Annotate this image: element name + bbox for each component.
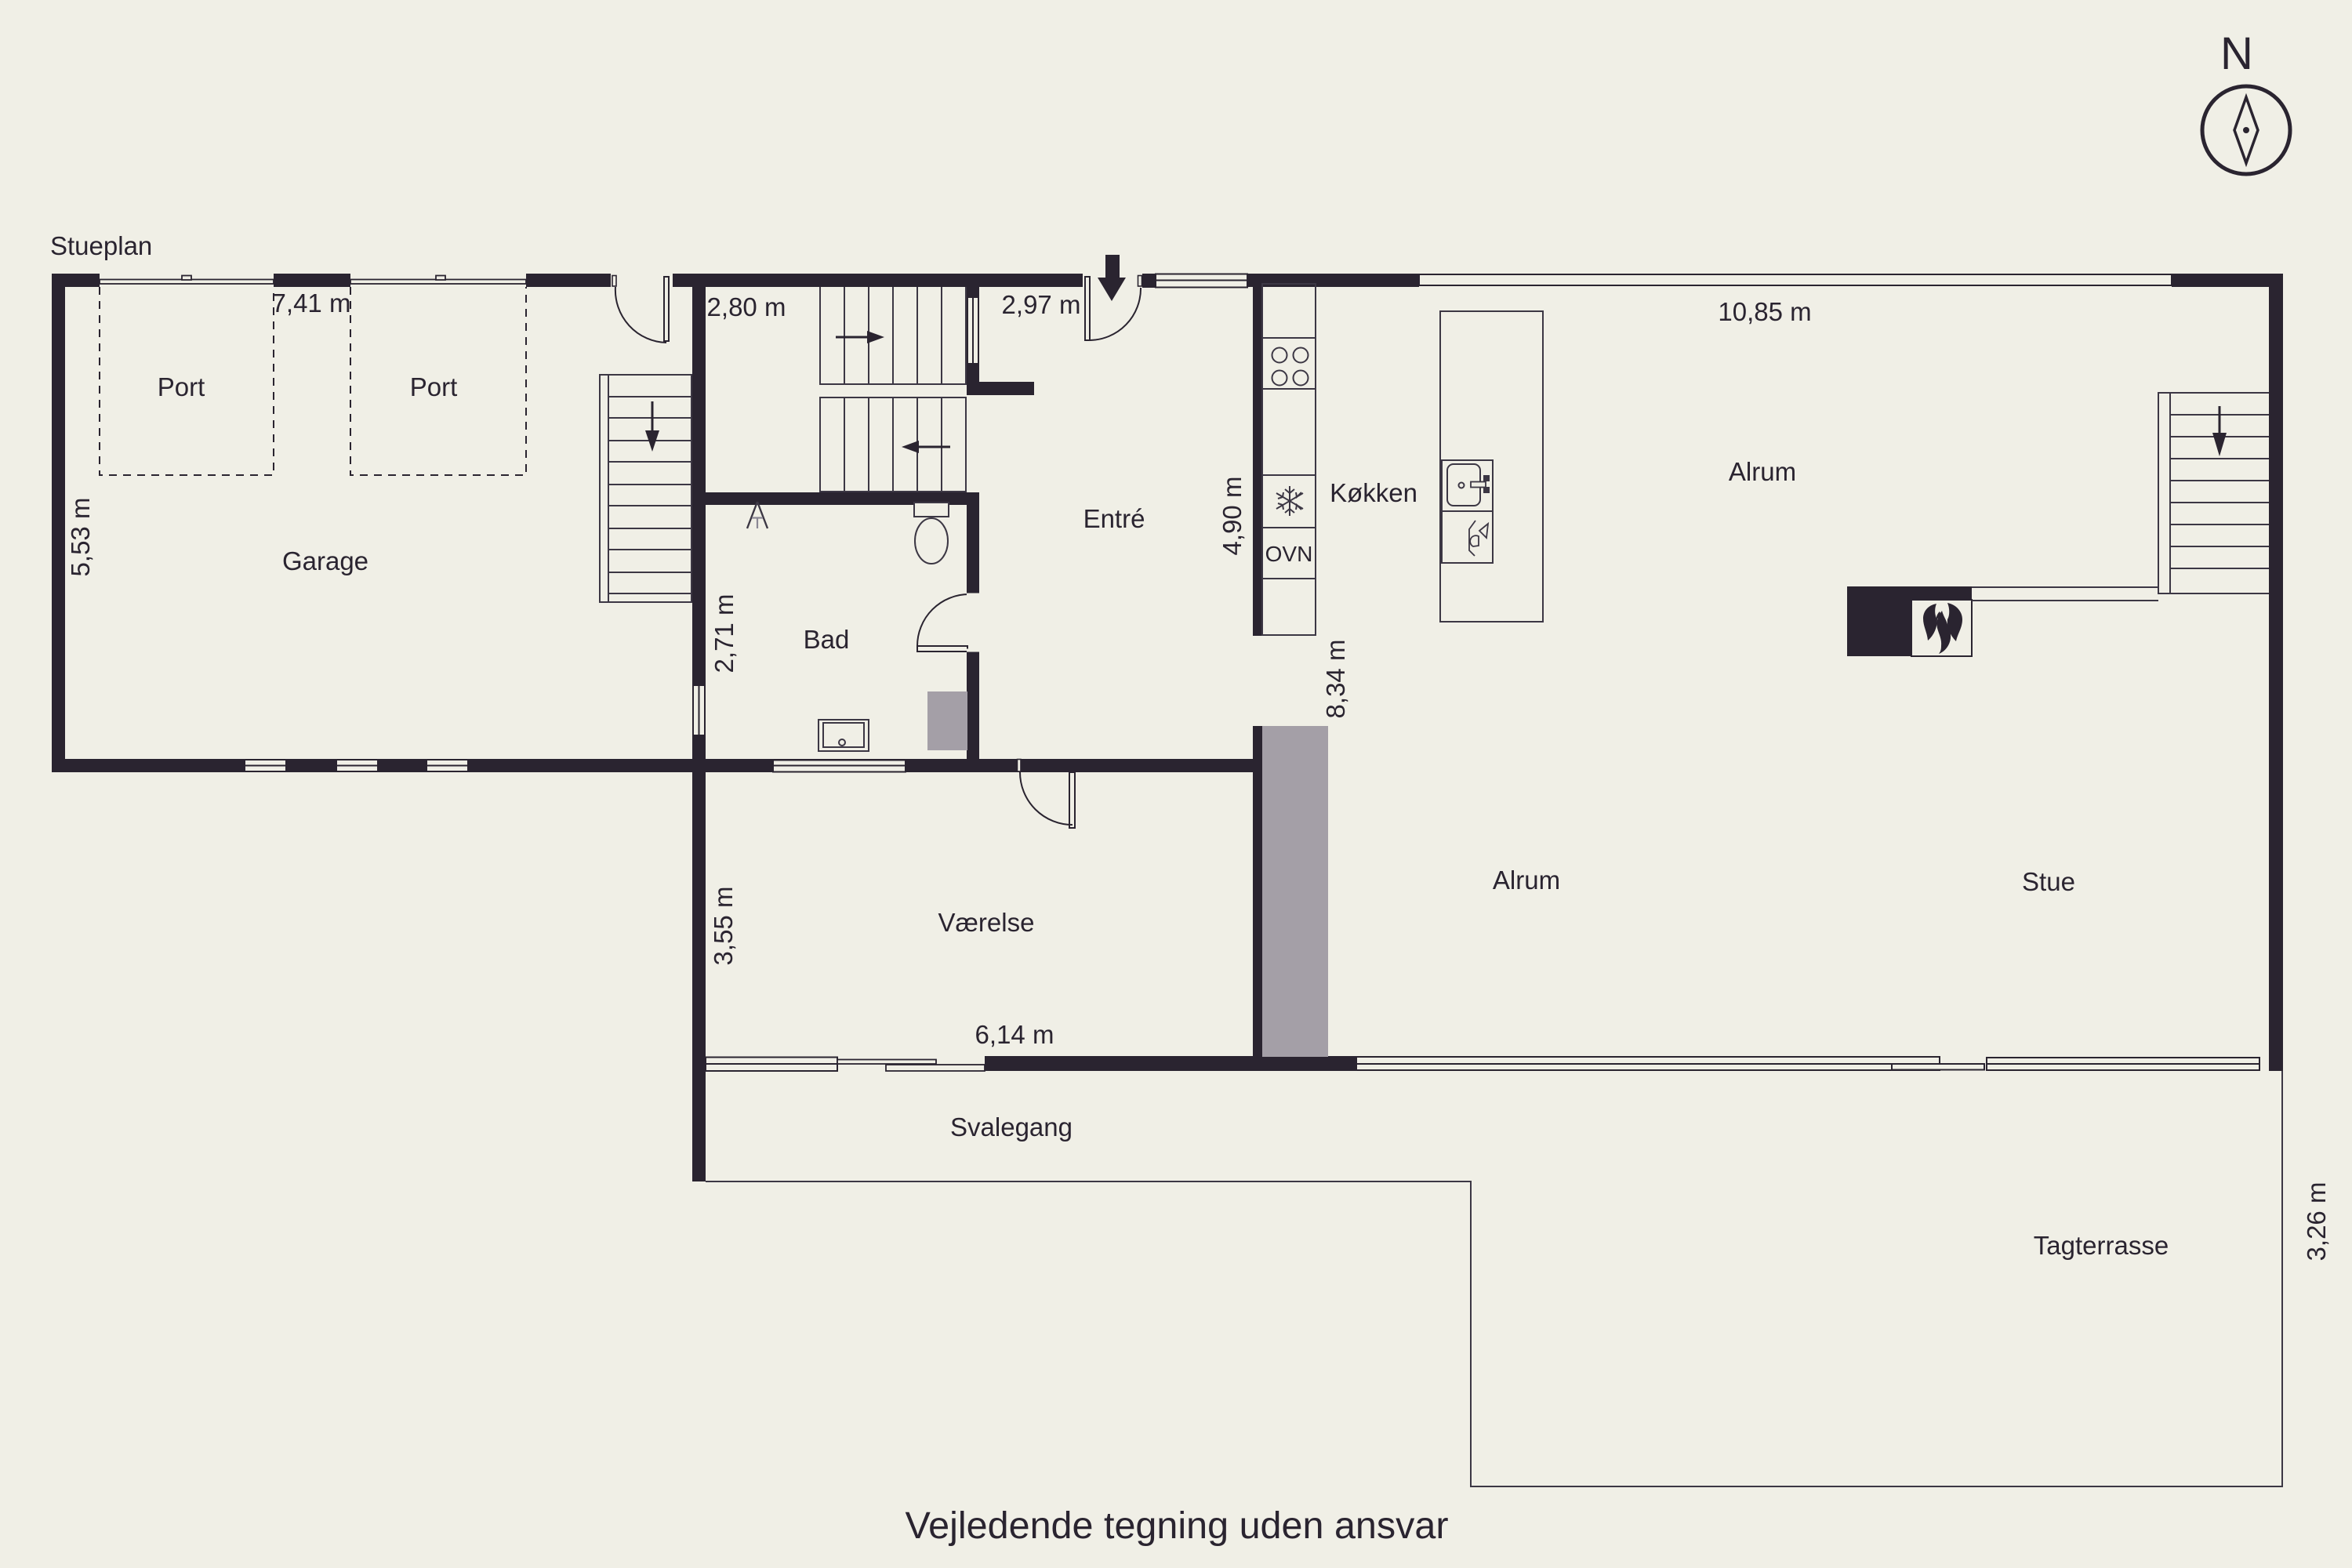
svg-text:Stueplan: Stueplan — [50, 231, 152, 260]
svg-text:Port: Port — [410, 372, 458, 401]
svg-text:Vejledende tegning uden ansvar: Vejledende tegning uden ansvar — [905, 1504, 1448, 1547]
svg-text:Alrum: Alrum — [1729, 457, 1796, 486]
svg-text:Køkken: Køkken — [1330, 478, 1417, 507]
svg-text:OVN: OVN — [1265, 542, 1313, 566]
svg-text:Værelse: Værelse — [938, 908, 1035, 937]
svg-text:2,80 m: 2,80 m — [707, 292, 786, 321]
svg-text:10,85 m: 10,85 m — [1718, 297, 1811, 326]
svg-text:Garage: Garage — [282, 546, 368, 575]
svg-text:Alrum: Alrum — [1493, 866, 1560, 895]
svg-text:5,53 m: 5,53 m — [66, 498, 95, 577]
svg-text:4,90 m: 4,90 m — [1218, 477, 1247, 556]
svg-text:Svalegang: Svalegang — [950, 1112, 1073, 1142]
svg-text:7,41 m: 7,41 m — [272, 289, 351, 318]
svg-text:Port: Port — [158, 372, 205, 401]
svg-text:Stue: Stue — [2022, 867, 2075, 896]
svg-text:8,34 m: 8,34 m — [1321, 640, 1350, 719]
svg-text:Entré: Entré — [1083, 504, 1145, 533]
svg-text:Tagterrasse: Tagterrasse — [2034, 1231, 2169, 1260]
svg-text:2,97 m: 2,97 m — [1002, 290, 1081, 319]
svg-text:6,14 m: 6,14 m — [975, 1020, 1054, 1049]
svg-text:3,55 m: 3,55 m — [709, 887, 738, 966]
svg-text:2,71 m: 2,71 m — [710, 594, 739, 673]
svg-text:N: N — [2220, 28, 2253, 79]
svg-text:3,26 m: 3,26 m — [2302, 1182, 2331, 1261]
svg-text:Bad: Bad — [804, 625, 850, 654]
